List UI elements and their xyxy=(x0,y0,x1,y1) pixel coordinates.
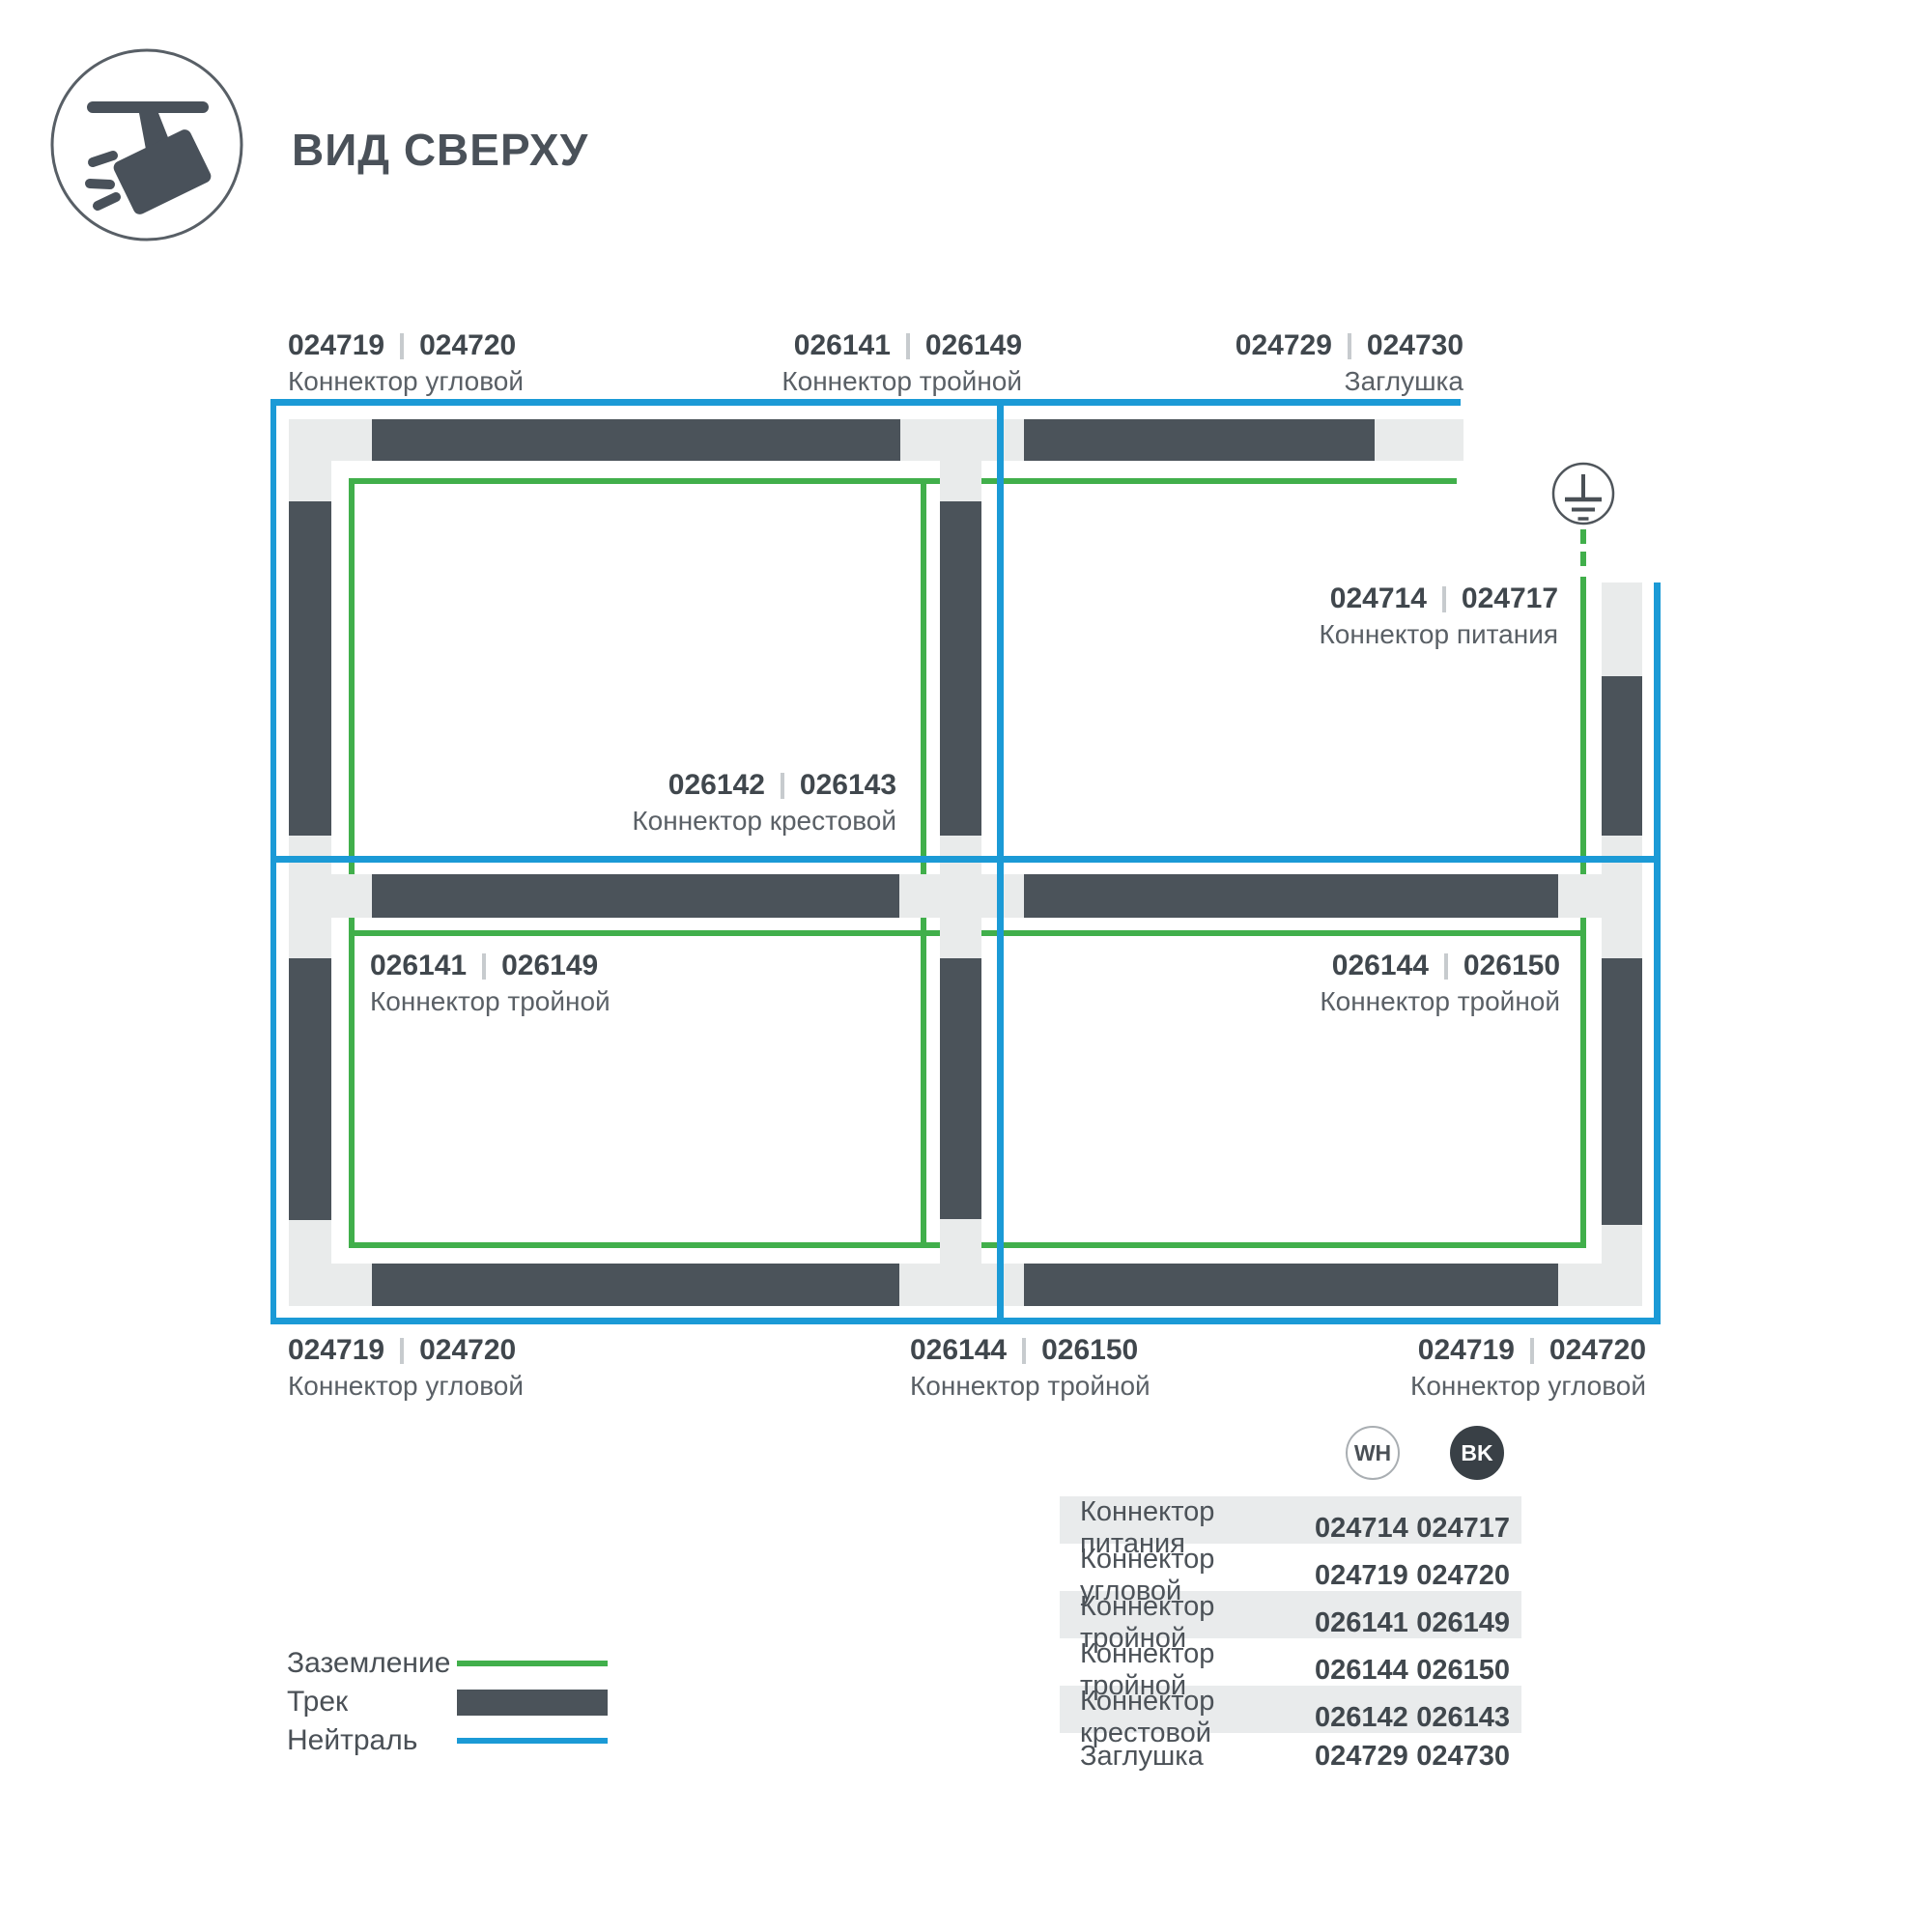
track-segment xyxy=(372,419,900,461)
label-codes: 024729024730 xyxy=(1236,331,1463,360)
label-codes: 024719024720 xyxy=(288,1336,524,1365)
label-codes: 026141026149 xyxy=(370,952,611,980)
label-corner-connector-bottom-left: 024719024720 Коннектор угловой xyxy=(288,1336,524,1400)
label-cross-connector: 026142026143 Коннектор крестовой xyxy=(632,771,896,835)
track-segment xyxy=(1602,676,1642,836)
label-triple-connector-left: 026141026149 Коннектор тройной xyxy=(370,952,611,1015)
label-triple-connector-bottom: 026144026150 Коннектор тройной xyxy=(910,1336,1151,1400)
legend-item-neutral: Нейтраль xyxy=(287,1721,608,1760)
article-table: Коннектор питания 024714 024717 Коннекто… xyxy=(1060,1496,1521,1780)
track-segment xyxy=(372,1264,899,1306)
table-row: Коннектор тройной 026141 026149 xyxy=(1060,1591,1521,1638)
track-swatch xyxy=(457,1690,608,1716)
ground-line-left xyxy=(349,478,355,1248)
page-title: ВИД СВЕРХУ xyxy=(292,124,588,176)
track-segment xyxy=(940,958,981,1219)
ground-line-top xyxy=(352,478,1457,484)
table-row: Коннектор крестовой 026142 026143 xyxy=(1060,1686,1521,1733)
ground-line-swatch xyxy=(457,1661,608,1666)
white-color-badge: WH xyxy=(1346,1426,1400,1480)
table-row: Коннектор питания 024714 024717 xyxy=(1060,1496,1521,1544)
neutral-line-right xyxy=(1654,582,1661,1324)
neutral-line-middle xyxy=(270,856,1660,863)
ground-line-center xyxy=(921,478,926,1248)
track-segment xyxy=(289,501,331,836)
label-triple-connector-top: 026141026149 Коннектор тройной xyxy=(781,331,1022,395)
ground-feed-dash xyxy=(1580,552,1586,566)
table-row: Коннектор угловой 024719 024720 xyxy=(1060,1544,1521,1591)
track-segment xyxy=(289,958,331,1220)
label-codes: 024719024720 xyxy=(288,331,524,360)
table-row: Коннектор тройной 026144 026150 xyxy=(1060,1638,1521,1686)
table-row: Заглушка 024729 024730 xyxy=(1060,1733,1521,1780)
label-codes: 026144026150 xyxy=(910,1336,1151,1365)
track-segment xyxy=(1024,419,1375,461)
legend: Заземление Трек Нейтраль xyxy=(287,1644,608,1760)
label-corner-connector-bottom-right: 024719024720 Коннектор угловой xyxy=(1410,1336,1646,1400)
neutral-line-top xyxy=(270,399,1461,406)
track-segment xyxy=(1024,874,1558,918)
legend-item-ground: Заземление xyxy=(287,1644,608,1683)
track-segment xyxy=(1024,1264,1558,1306)
label-power-connector: 024714024717 Коннектор питания xyxy=(1319,584,1558,648)
label-corner-connector-top-left: 024719024720 Коннектор угловой xyxy=(288,331,524,395)
label-codes: 026144026150 xyxy=(1320,952,1560,980)
label-codes: 026142026143 xyxy=(632,771,896,800)
track-segment xyxy=(940,501,981,836)
black-color-badge: BK xyxy=(1450,1426,1504,1480)
neutral-line-bottom xyxy=(270,1318,1660,1324)
label-end-cap: 024729024730 Заглушка xyxy=(1236,331,1463,395)
neutral-line-swatch xyxy=(457,1738,608,1744)
earth-symbol-icon xyxy=(1549,460,1617,532)
page: ВИД СВЕРХУ xyxy=(0,0,1932,1932)
track-segment xyxy=(1602,958,1642,1225)
label-codes: 026141026149 xyxy=(781,331,1022,360)
track-segment xyxy=(372,874,899,918)
legend-item-track: Трек xyxy=(287,1683,608,1721)
track-spotlight-icon xyxy=(48,46,245,248)
label-codes: 024719024720 xyxy=(1410,1336,1646,1365)
label-triple-connector-right: 026144026150 Коннектор тройной xyxy=(1320,952,1560,1015)
label-codes: 024714024717 xyxy=(1319,584,1558,613)
